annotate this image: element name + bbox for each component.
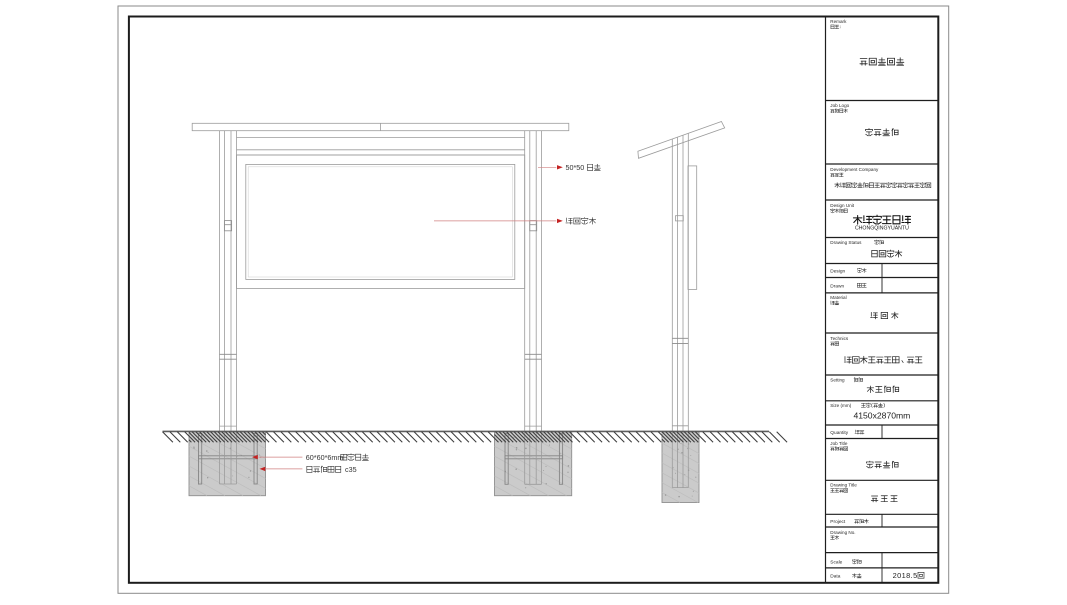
svg-text:c35: c35 <box>345 465 357 474</box>
svg-text:Drawn: Drawn <box>830 283 844 289</box>
svg-text:Job Logo: Job Logo <box>830 103 849 108</box>
svg-text:Scale: Scale <box>830 560 842 566</box>
svg-text:Project: Project <box>830 519 846 525</box>
svg-text:Design Unit: Design Unit <box>830 203 854 208</box>
svg-text:60*60*6mm: 60*60*6mm <box>306 453 344 462</box>
svg-text:Data: Data <box>830 574 840 580</box>
svg-text:4150x2870mm: 4150x2870mm <box>853 411 910 421</box>
svg-text:Development Company: Development Company <box>830 167 879 172</box>
svg-text:Material: Material <box>830 295 846 300</box>
svg-text:2018.5: 2018.5 <box>893 571 918 580</box>
svg-text:Technics: Technics <box>830 336 849 341</box>
svg-text:Quantity: Quantity <box>830 430 848 436</box>
svg-text:Drawing Title: Drawing Title <box>830 483 857 488</box>
svg-text:Setting: Setting <box>830 378 845 383</box>
svg-text:Remark: Remark <box>830 19 847 24</box>
svg-text:Job Title: Job Title <box>830 441 848 446</box>
svg-text:Drawing No.: Drawing No. <box>830 530 855 535</box>
svg-text:CHONGQINGYUANTU: CHONGQINGYUANTU <box>855 226 909 232</box>
svg-text:Design: Design <box>830 268 845 274</box>
svg-text:Drawing Status: Drawing Status <box>830 240 862 245</box>
svg-text:50*50: 50*50 <box>566 163 585 172</box>
svg-text:Size (mm): Size (mm) <box>830 403 851 408</box>
